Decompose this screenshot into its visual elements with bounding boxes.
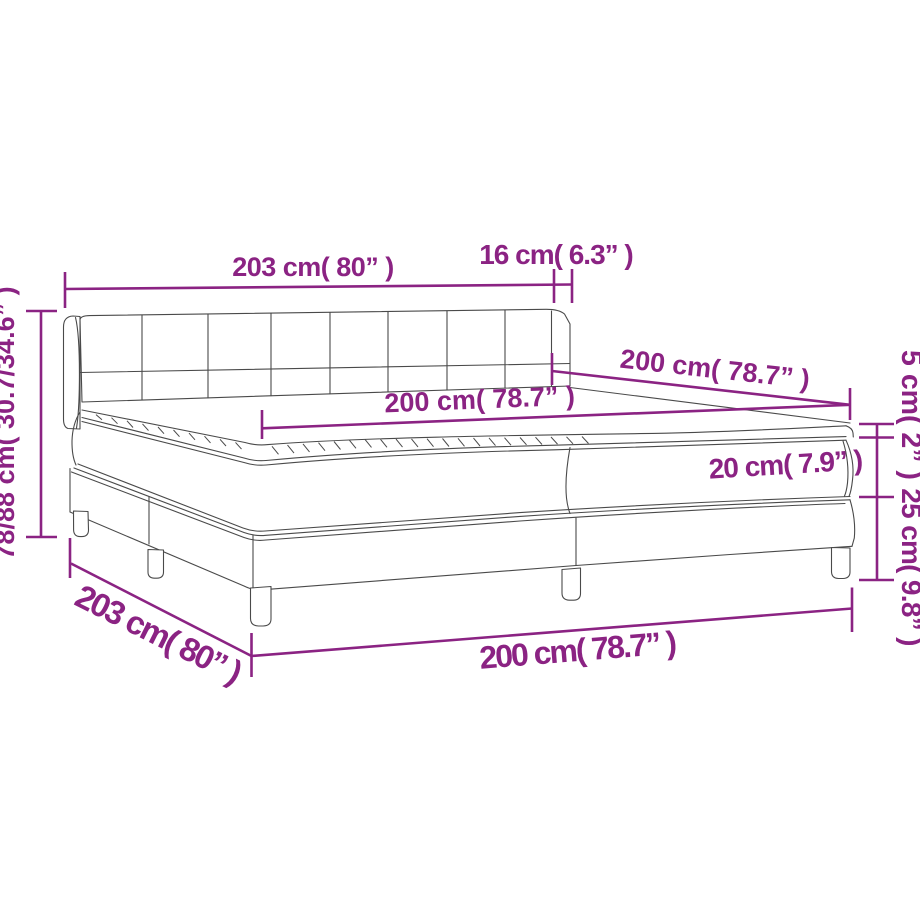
svg-text:16 cm( 6.3” ): 16 cm( 6.3” ): [479, 239, 633, 270]
svg-text:5 cm( 2” ): 5 cm( 2” ): [895, 350, 920, 480]
svg-text:25 cm( 9.8” ): 25 cm( 9.8” ): [896, 488, 920, 645]
svg-text:78/88 cm( 30.7/34.6” ): 78/88 cm( 30.7/34.6” ): [0, 286, 20, 559]
svg-text:203 cm( 80” ): 203 cm( 80” ): [232, 252, 394, 282]
